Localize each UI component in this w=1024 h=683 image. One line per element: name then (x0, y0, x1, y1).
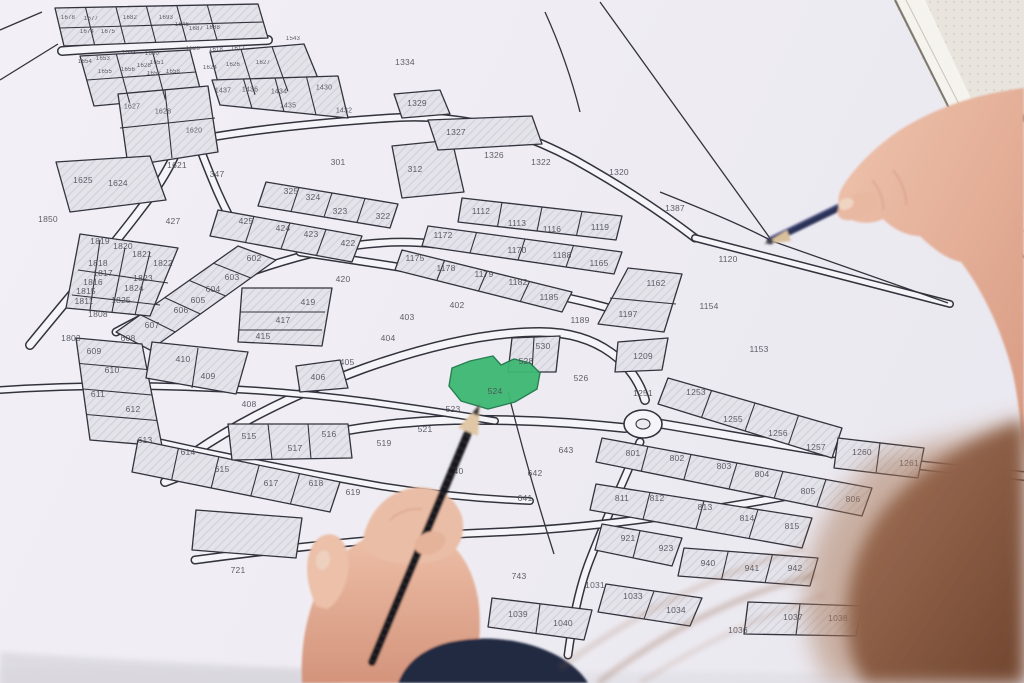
cadastral-map-photo: 1678167716821693164616871688167416751543… (0, 0, 1024, 683)
bottom-hand (302, 404, 588, 683)
bottom-fingers (362, 487, 463, 564)
hair-blur (560, 420, 1024, 683)
hair-strand (598, 575, 815, 683)
hair-strand (640, 595, 825, 683)
top-right-hand (764, 88, 1024, 462)
right-hand-arm (838, 88, 1024, 462)
hair-strand (560, 548, 805, 668)
photo-overlay (0, 0, 1024, 683)
